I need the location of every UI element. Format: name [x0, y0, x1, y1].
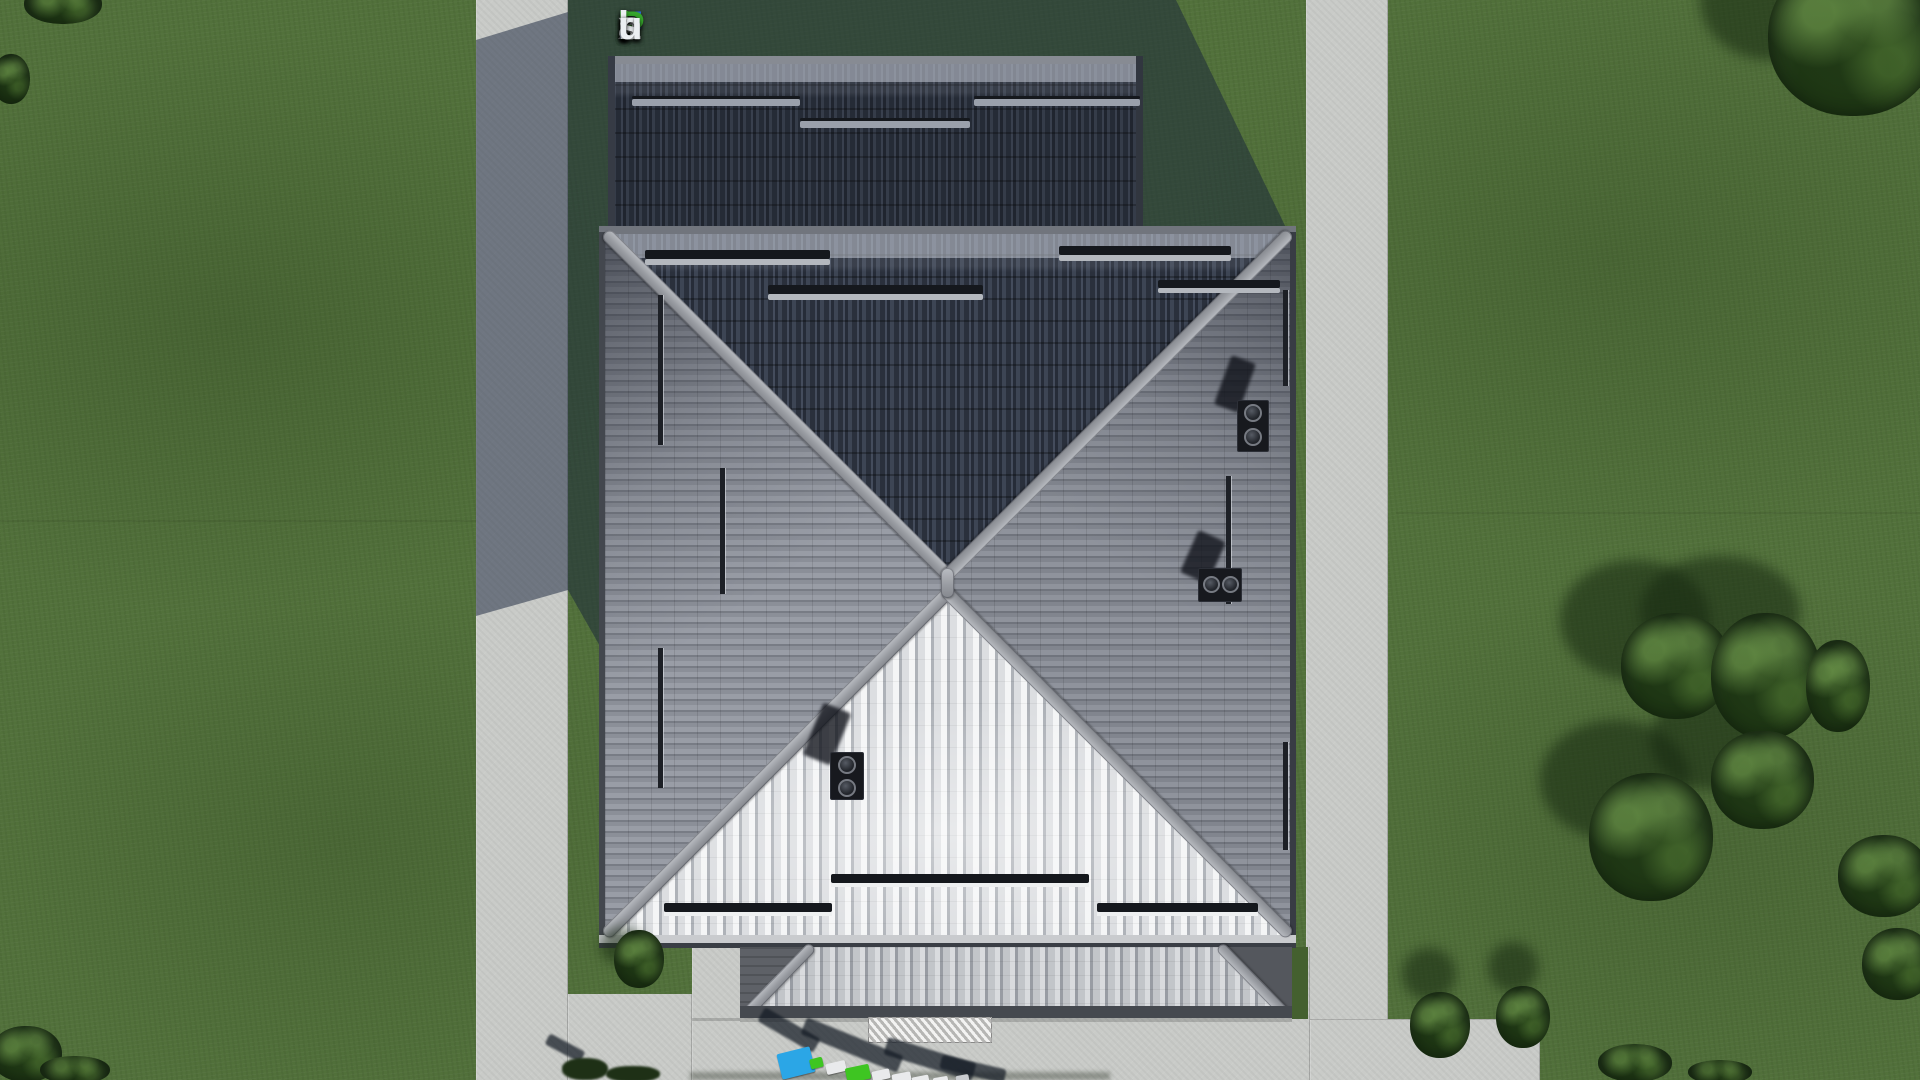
tree-canopy — [1589, 773, 1713, 901]
snow-guard — [664, 912, 832, 916]
garage-roof — [608, 60, 1143, 232]
bush — [40, 1056, 110, 1080]
garage-eave-fascia — [608, 56, 1143, 64]
bush — [1496, 986, 1550, 1048]
snow-guard — [1097, 903, 1258, 912]
snow-guard — [632, 99, 800, 106]
snow-guard — [1283, 290, 1288, 386]
snow-guard — [831, 883, 1089, 887]
snow-guard — [1283, 742, 1288, 850]
snow-guard — [658, 295, 663, 445]
chimney-flue — [1244, 404, 1262, 422]
snow-guard — [645, 259, 830, 265]
shrub-silhouette — [606, 1066, 660, 1080]
bush — [1598, 1044, 1672, 1080]
snow-guard — [664, 903, 832, 912]
shrub-silhouette — [562, 1058, 608, 1080]
roof-eave-fascia-left — [599, 232, 605, 935]
snow-guard — [768, 285, 983, 294]
porch-eave-shadow — [740, 1018, 1292, 1022]
snow-guard — [1158, 288, 1280, 293]
bush — [1688, 1060, 1752, 1080]
bush — [1410, 992, 1470, 1058]
chimney-flue — [1244, 428, 1262, 446]
aerial-render: FixPlans.ru — [0, 0, 1920, 1080]
ridge-center — [941, 568, 954, 598]
grass-sliver — [1292, 947, 1308, 1019]
snow-guard — [658, 648, 663, 788]
snow-guard — [720, 468, 725, 594]
lawn-seam — [1396, 512, 1920, 514]
snow-guard — [645, 250, 830, 259]
bush — [1838, 835, 1920, 917]
snow-guard — [831, 874, 1089, 883]
chimney-flue — [1222, 576, 1239, 593]
snow-guard — [1097, 912, 1258, 916]
snow-guard — [1158, 280, 1280, 288]
roof-eave-fascia-bottom — [599, 935, 1296, 943]
tree-canopy — [1711, 613, 1821, 739]
snow-guard — [800, 121, 970, 128]
doormat — [868, 1017, 992, 1043]
garage-fascia-right — [1136, 56, 1143, 232]
snow-guard — [1059, 255, 1231, 261]
patio-joint — [692, 1018, 740, 1021]
bush-shadow — [1488, 942, 1538, 992]
tree-canopy — [1711, 731, 1814, 829]
porch-eave-fascia — [740, 1006, 1292, 1018]
chimney-flue — [838, 756, 856, 774]
porch-roof-face — [740, 947, 1292, 1009]
walkway-right — [1306, 0, 1388, 1080]
garage-fascia-left — [608, 56, 615, 232]
logo-char: u — [618, 6, 643, 46]
chimney-flue — [1203, 576, 1220, 593]
tree-canopy — [1806, 640, 1870, 732]
snow-guard — [1059, 246, 1231, 255]
roof-eave-fascia-top — [599, 226, 1296, 234]
snow-guard — [974, 99, 1140, 106]
bush — [1862, 928, 1920, 1000]
lawn-seam — [0, 520, 476, 522]
letter-plate-white — [955, 1074, 969, 1080]
roof-eave-fascia-right — [1290, 232, 1296, 935]
bush — [614, 930, 664, 988]
chimney-flue — [838, 779, 856, 797]
snow-guard — [768, 294, 983, 300]
